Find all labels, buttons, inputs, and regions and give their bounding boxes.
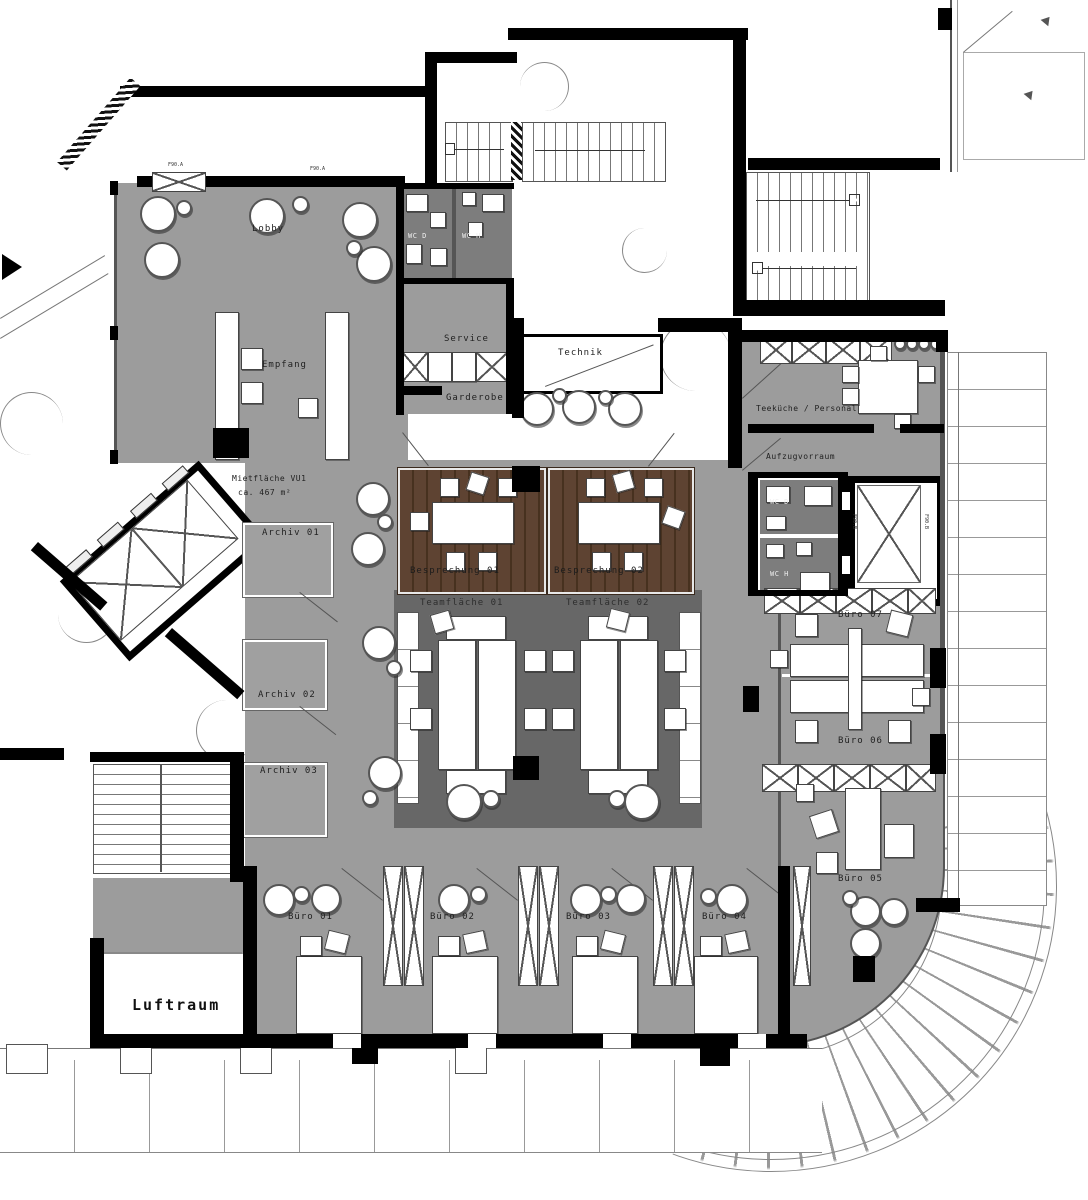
room-label: Archiv 01 [262, 528, 320, 538]
room-label: Büro 02 [430, 912, 475, 922]
office-stool [842, 890, 858, 906]
elevator-door [842, 556, 850, 574]
facade-line [957, 0, 958, 172]
office-desk [432, 956, 498, 1034]
wall-segment [0, 748, 64, 760]
wc-east-wall [748, 472, 840, 478]
team-desk [580, 640, 618, 770]
office-round-table [850, 928, 881, 959]
team-chair [524, 708, 546, 730]
meeting-chair [586, 478, 605, 497]
stair-top-left [445, 122, 513, 182]
team-chair [410, 708, 432, 730]
balcony-east-rail [958, 352, 959, 904]
stair-east-west-wall [733, 158, 746, 316]
stair-sw-wall [230, 752, 244, 882]
wc-wall [396, 183, 514, 189]
technik-room [521, 334, 663, 394]
office-chair [795, 720, 818, 743]
fire-rating-tag: F90.B [923, 514, 929, 529]
room-label: Aufzugvorraum [766, 452, 835, 461]
column [513, 756, 539, 780]
team-chair [410, 650, 432, 672]
corridor-stool [386, 660, 402, 676]
kitchen-chair [918, 366, 935, 383]
room-label: Besprechung 01 [410, 566, 500, 576]
room-label: Büro 05 [838, 874, 883, 884]
office-chair [576, 936, 598, 956]
office-table [311, 884, 341, 914]
wc-fixture [482, 194, 504, 212]
office-chair [700, 936, 722, 956]
kitchen-chair [870, 346, 887, 361]
wall-stud [110, 181, 118, 195]
diagonal-wall [165, 628, 245, 699]
office-stool [470, 886, 487, 903]
team-desk [446, 616, 506, 640]
reception-chair [241, 348, 263, 370]
lobby-stool [176, 200, 192, 216]
stair-east-south-wall [733, 300, 945, 316]
wall-segment [748, 158, 940, 170]
column [743, 686, 759, 712]
room-label: Büro 06 [838, 736, 883, 746]
room-label: WC D [408, 232, 427, 240]
wc-fixture [766, 544, 784, 558]
corridor-stool [598, 390, 613, 405]
wardrobe-module [793, 866, 811, 986]
corridor-table [351, 532, 385, 566]
corridor-table [608, 392, 642, 426]
room-label: Lobby [252, 224, 284, 234]
room-label: WC H [462, 232, 481, 240]
team-desk [438, 640, 476, 770]
neighbor-roof-line [0, 273, 109, 339]
garderobe-rail [400, 386, 442, 395]
kitchen-chair [842, 388, 859, 405]
stair-top-right [522, 122, 666, 182]
lobby-table [356, 246, 392, 282]
wc-fixture [766, 516, 786, 530]
room-label: Büro 03 [566, 912, 611, 922]
team-desk [478, 640, 516, 770]
corridor-stool [362, 790, 378, 806]
stair-arrow-head [850, 195, 859, 205]
wardrobe-module [539, 866, 559, 986]
stair-arrow [535, 150, 645, 151]
office-row-west-wall [243, 866, 257, 1048]
service-counter [402, 352, 428, 382]
lobby-stool [346, 240, 362, 256]
wc-fixture [430, 248, 447, 266]
wc-east-wall [748, 590, 840, 596]
luftraum-wall [90, 938, 104, 1048]
room-label: Teamfläche 02 [566, 598, 649, 608]
office-chair [816, 852, 838, 874]
floor-plan: WC D WC H Service Garderobe Technik Lobb… [0, 0, 1088, 1200]
wardrobe-module [383, 866, 403, 986]
wall-segment [425, 52, 517, 63]
office-chair [438, 936, 460, 956]
office-row-south-wall [245, 1034, 807, 1048]
door-swing-arc [0, 392, 63, 455]
stair-rail [160, 764, 162, 872]
stair-east [746, 172, 870, 302]
elevator-wall [838, 472, 848, 596]
elevator-door [842, 492, 850, 510]
reception-block [213, 428, 249, 458]
facade-stub [916, 898, 960, 912]
exterior-wall-north [120, 86, 435, 97]
stair-divider-hatch [511, 122, 522, 180]
room-label: WC D [770, 498, 789, 506]
door-opening [333, 1034, 361, 1048]
wc-fixture [800, 572, 830, 592]
office-desk [694, 956, 758, 1034]
north-arrow-marker [2, 254, 22, 280]
facade-stub [930, 734, 946, 774]
office-desk [790, 644, 856, 677]
office-side-table [912, 688, 930, 706]
team-chair [664, 708, 686, 730]
stair-arrow [762, 268, 856, 269]
team-round-table [446, 784, 482, 820]
wall-cabinet [152, 172, 206, 192]
team-chair [524, 650, 546, 672]
wall-segment [512, 318, 524, 418]
lobby-stool [292, 196, 309, 213]
office-chair [795, 614, 818, 637]
office-stool [600, 886, 617, 903]
meeting-table [432, 502, 514, 544]
corridor-floor [93, 878, 243, 954]
desk-connector [848, 628, 862, 730]
teekueche-south-wall [900, 424, 944, 433]
stair-arrow-head [753, 263, 762, 273]
exterior-wall-diagonal-hatched [57, 77, 140, 170]
office-partition [778, 590, 781, 880]
room-label: Archiv 03 [260, 766, 318, 776]
balcony-post [6, 1044, 48, 1074]
facade-stub [936, 330, 948, 352]
lobby-table [144, 242, 180, 278]
stair-arrow-head [446, 144, 454, 154]
corridor-table [368, 756, 402, 790]
corridor-stool [552, 388, 567, 403]
stair-southwest [93, 764, 233, 874]
office-desk [858, 644, 924, 677]
wardrobe-module [404, 866, 424, 986]
wc-fixture [406, 194, 428, 212]
wardrobe-module [653, 866, 673, 986]
room-label: Besprechung 02 [554, 566, 644, 576]
elevator-shaft [848, 476, 944, 606]
stair-arrow [452, 149, 504, 150]
column [853, 956, 875, 982]
area-label-line1: Mietfläche VU1 [232, 474, 306, 483]
reception-chair [241, 382, 263, 404]
room-label: WC H [770, 570, 789, 578]
luftraum-wall [90, 1034, 260, 1048]
wall-segment [425, 52, 437, 188]
meeting-chair [644, 478, 663, 497]
teekueche-south-wall [748, 424, 874, 433]
office-stool [700, 888, 717, 905]
fire-rating-tag: F90.A [310, 166, 325, 172]
office-desk [296, 956, 362, 1034]
room-label: Büro 07 [838, 610, 883, 620]
luftraum-void [104, 952, 242, 1038]
office-side-table [796, 784, 814, 802]
office-desk [845, 788, 881, 870]
corridor-table [562, 390, 596, 424]
wc-wall [396, 278, 514, 284]
room-label: Service [444, 334, 489, 344]
neighbor-terrace-diagonal [963, 11, 1013, 53]
elevator-cab [857, 485, 921, 583]
office-chair [888, 720, 911, 743]
office-side-table [770, 650, 788, 668]
kitchen-chair [842, 366, 859, 383]
team-round-table [624, 784, 660, 820]
team-desk [620, 640, 658, 770]
door-opening [603, 1034, 631, 1048]
balcony-post [455, 1044, 487, 1074]
corridor-stool [377, 514, 393, 530]
meeting-chair [440, 478, 459, 497]
cabinet-row [762, 764, 798, 792]
east-facade-line [940, 330, 944, 760]
reception-chair [298, 398, 318, 418]
corridor-table [520, 392, 554, 426]
wc-east-wall [748, 472, 758, 596]
office-side-table [884, 824, 914, 858]
area-label-line2: ca. 467 m² [238, 488, 291, 497]
room-label: Archiv 02 [258, 690, 316, 700]
room-label: Teeküche / Personal [756, 404, 857, 413]
wc-fixture [462, 192, 476, 206]
meeting-table [578, 502, 660, 544]
wc-fixture [804, 486, 832, 506]
stair-arrow [756, 200, 850, 201]
room-label: Büro 04 [702, 912, 747, 922]
wardrobe-module [518, 866, 538, 986]
service-counter [428, 352, 452, 382]
divider-end-block [932, 668, 946, 682]
door-swing-arc [622, 228, 667, 273]
column [512, 466, 540, 492]
balcony-post [240, 1044, 272, 1074]
service-counter [476, 352, 508, 382]
wc-fixture [406, 244, 422, 264]
room-label: Technik [558, 348, 603, 358]
office-desk [572, 956, 638, 1034]
team-stool [482, 790, 500, 808]
wc-divider-wall [452, 186, 456, 280]
room-label: Garderobe [446, 393, 504, 403]
stair-landing [747, 252, 867, 266]
neighbor-terrace-outline [963, 52, 1085, 160]
door-opening [468, 1034, 496, 1048]
exterior-wall-north-2 [508, 28, 748, 40]
office-round-table [880, 898, 908, 926]
fire-rating-tag: F90.B [851, 514, 857, 529]
wall-stud [110, 450, 118, 464]
room-label: Empfang [262, 360, 307, 370]
door-swing-arc [520, 62, 569, 111]
room-label: Luftraum [132, 996, 220, 1014]
service-counter [452, 352, 476, 382]
wc-wall [396, 183, 404, 415]
lobby-table [140, 196, 176, 232]
lobby-west-glazing [114, 185, 117, 463]
wall-stud [110, 326, 118, 340]
east-wing-north-wall [740, 330, 945, 342]
wardrobe-module [674, 866, 694, 986]
team-chair [552, 708, 574, 730]
room-label: Büro 01 [288, 912, 333, 922]
reception-counter [325, 312, 349, 460]
door-opening [738, 1034, 766, 1048]
wall-segment [733, 28, 746, 178]
balcony-east [947, 352, 1047, 906]
kitchen-table [858, 360, 918, 414]
corridor-table [362, 626, 396, 660]
office-partition-wall [778, 866, 790, 1034]
cabinet-row [908, 588, 936, 614]
wall-segment [938, 8, 952, 30]
fire-rating-tag: F90.A [168, 162, 183, 168]
balcony-post [120, 1044, 152, 1074]
office-table [616, 884, 646, 914]
team-chair [552, 650, 574, 672]
office-chair [300, 936, 322, 956]
meeting-chair [410, 512, 429, 531]
team-chair [664, 650, 686, 672]
roof-mark [1041, 14, 1054, 27]
room-label: Teamfläche 01 [420, 598, 503, 608]
lobby-table [342, 202, 378, 238]
office-desk [790, 680, 856, 713]
wc-fixture [796, 542, 812, 556]
stair-sw-wall [90, 752, 242, 762]
corridor-table [356, 482, 390, 516]
wc-fixture [430, 212, 446, 228]
office-stool [293, 886, 310, 903]
